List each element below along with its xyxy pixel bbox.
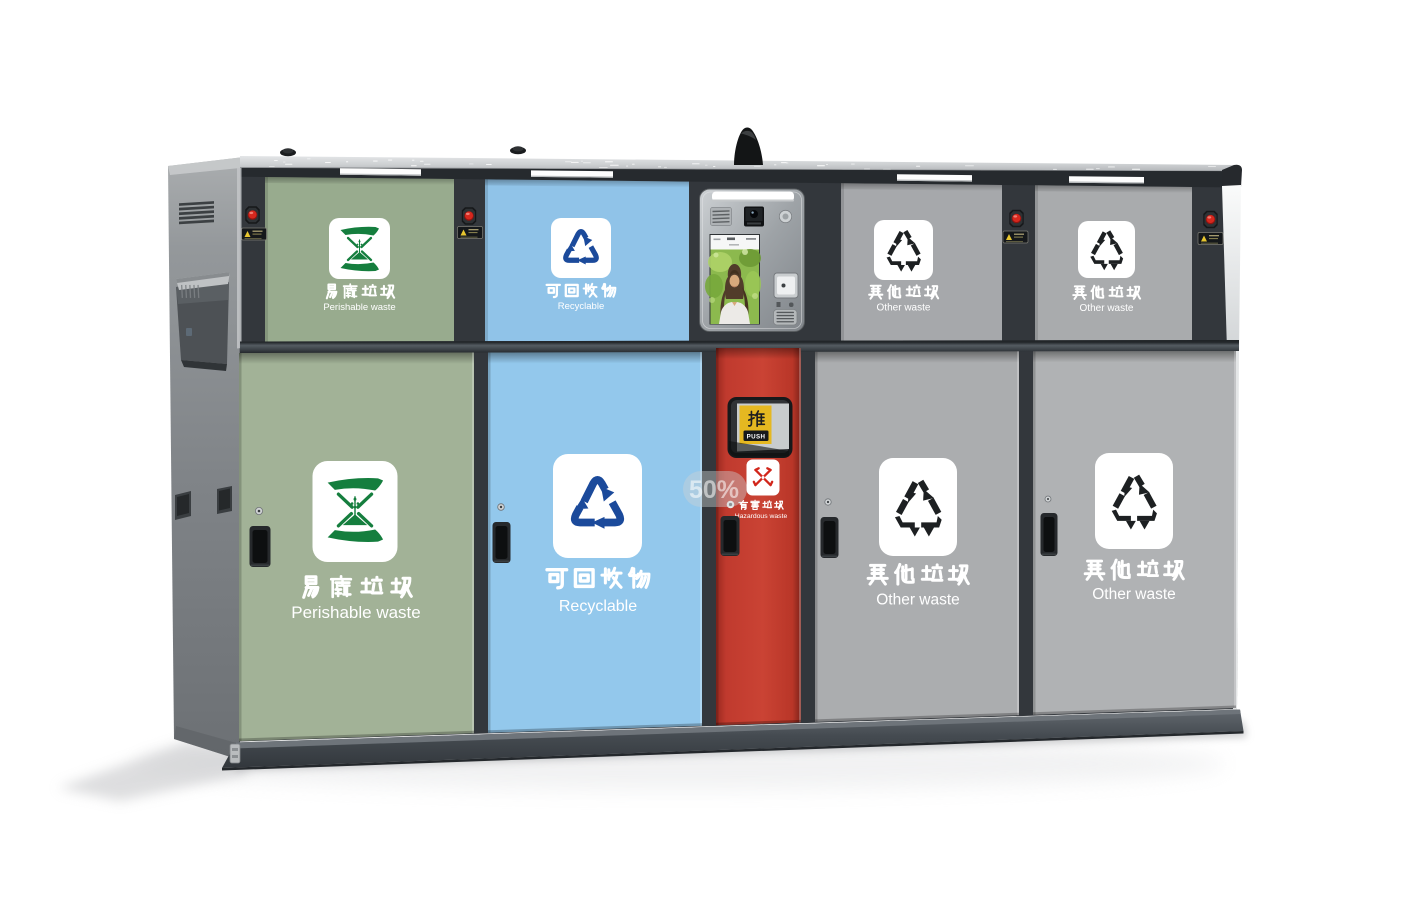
svg-text:Other waste: Other waste [877,303,931,314]
svg-text:Hazardous waste: Hazardous waste [735,513,788,520]
svg-text:Other waste: Other waste [1092,586,1176,603]
svg-text:PUSH: PUSH [747,434,766,441]
svg-text:50%: 50% [689,476,739,504]
svg-text:Recyclable: Recyclable [558,301,604,312]
svg-text:Other waste: Other waste [1080,303,1134,314]
svg-text:Perishable waste: Perishable waste [291,603,420,622]
svg-text:Recyclable: Recyclable [559,598,637,615]
svg-text:Other waste: Other waste [876,592,960,609]
svg-text:Perishable waste: Perishable waste [323,302,395,313]
